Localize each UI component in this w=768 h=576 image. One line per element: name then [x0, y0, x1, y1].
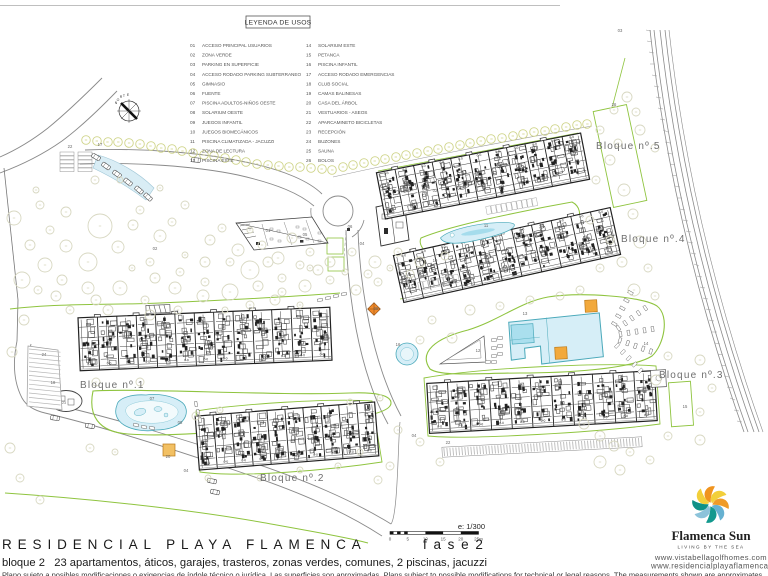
svg-text:bloque 2 23 apartamentos, át: bloque 2 23 apartamentos, áticos, garaje… — [2, 557, 487, 569]
svg-text:RESIDENCIAL PLAYA FLAMENCA: RESIDENCIAL PLAYA FLAMENCA — [2, 537, 367, 552]
svg-text:12: 12 — [476, 348, 481, 353]
svg-text:Plano sujeto a posibles modifi: Plano sujeto a posibles modificaciones o… — [2, 571, 764, 576]
svg-text:www.residencialplayaflamenca.: www.residencialplayaflamenca. — [650, 562, 768, 571]
svg-text:0-0: 0-0 — [223, 356, 228, 360]
svg-text:15: 15 — [306, 53, 312, 58]
svg-text:Bloque nº.5: Bloque nº.5 — [596, 141, 661, 152]
svg-text:09: 09 — [190, 120, 196, 125]
svg-text:RECEPCIÓN: RECEPCIÓN — [318, 128, 345, 134]
svg-text:0-0: 0-0 — [205, 461, 210, 465]
svg-text:0-0: 0-0 — [277, 455, 282, 459]
svg-text:20: 20 — [306, 101, 312, 106]
svg-text:0-0: 0-0 — [479, 422, 484, 426]
svg-text:PISCINA INFANTIL: PISCINA INFANTIL — [318, 62, 358, 67]
svg-text:PARKING EN SUPERFICIE: PARKING EN SUPERFICIE — [202, 62, 259, 67]
svg-text:10: 10 — [433, 258, 438, 263]
svg-text:fase2: fase2 — [423, 537, 490, 552]
svg-text:0-0: 0-0 — [126, 360, 131, 364]
svg-text:CAMAS BALINESAS: CAMAS BALINESAS — [318, 91, 361, 96]
svg-text:16: 16 — [306, 62, 312, 67]
svg-text:26: 26 — [306, 158, 312, 163]
svg-text:0-0: 0-0 — [295, 454, 300, 458]
svg-text:0-0: 0-0 — [331, 451, 336, 455]
svg-text:10: 10 — [190, 129, 196, 134]
svg-text:04: 04 — [184, 468, 189, 473]
svg-text:Flamenca Sun: Flamenca Sun — [671, 528, 751, 543]
svg-text:16: 16 — [396, 342, 401, 347]
svg-text:LEYENDA DE USOS: LEYENDA DE USOS — [245, 20, 312, 27]
svg-text:04: 04 — [190, 72, 196, 77]
svg-text:18: 18 — [51, 380, 56, 385]
svg-text:VESTUARIOS - ASEOS: VESTUARIOS - ASEOS — [318, 110, 367, 115]
svg-text:14: 14 — [306, 43, 312, 48]
svg-text:0-0: 0-0 — [320, 352, 325, 356]
svg-text:22: 22 — [68, 144, 73, 149]
svg-text:ZONA VERDE: ZONA VERDE — [202, 53, 232, 58]
svg-text:0-0: 0-0 — [184, 358, 189, 362]
svg-text:23: 23 — [62, 401, 66, 405]
svg-text:01: 01 — [190, 43, 196, 48]
svg-text:04: 04 — [412, 433, 417, 438]
svg-text:JUEGOS BIOMECÁNICOS: JUEGOS BIOMECÁNICOS — [202, 128, 258, 134]
svg-text:ACCESO RODADO PARKING SUBTERRA: ACCESO RODADO PARKING SUBTERRANEO — [202, 72, 301, 77]
svg-text:Bloque nº.4: Bloque nº.4 — [621, 234, 686, 245]
svg-text:0-0: 0-0 — [623, 414, 628, 418]
svg-text:02: 02 — [518, 396, 523, 401]
svg-text:23: 23 — [306, 129, 312, 134]
svg-text:22: 22 — [446, 440, 451, 445]
svg-text:0-0: 0-0 — [259, 457, 264, 461]
svg-text:05: 05 — [303, 232, 308, 237]
svg-text:0-0: 0-0 — [561, 417, 566, 421]
svg-text:0-0: 0-0 — [203, 357, 208, 361]
svg-text:0-0: 0-0 — [437, 424, 442, 428]
svg-text:02: 02 — [433, 188, 438, 193]
svg-text:0-0: 0-0 — [262, 355, 267, 359]
svg-text:Bloque nº.1: Bloque nº.1 — [80, 380, 145, 391]
svg-text:0-0: 0-0 — [145, 360, 150, 364]
svg-text:13: 13 — [190, 158, 196, 163]
svg-text:11: 11 — [484, 223, 489, 228]
svg-text:02: 02 — [190, 53, 196, 58]
svg-text:25: 25 — [306, 149, 312, 154]
svg-text:0-0: 0-0 — [644, 413, 649, 417]
svg-text:17: 17 — [306, 72, 312, 77]
svg-text:0-0: 0-0 — [165, 359, 170, 363]
svg-text:0-0: 0-0 — [300, 353, 305, 357]
svg-text:LIVING BY THE SEA: LIVING BY THE SEA — [677, 545, 744, 550]
svg-text:22: 22 — [306, 120, 312, 125]
svg-text:PISCINA ADULTOS-NIÑOS OESTE: PISCINA ADULTOS-NIÑOS OESTE — [202, 100, 276, 106]
svg-text:Bloque nº.3: Bloque nº.3 — [659, 370, 724, 381]
svg-text:BOLOS: BOLOS — [318, 158, 334, 163]
svg-text:CLUB SOCIAL: CLUB SOCIAL — [318, 81, 349, 86]
svg-text:06: 06 — [348, 224, 353, 229]
svg-text:0-0: 0-0 — [87, 362, 92, 366]
svg-text:0-0: 0-0 — [541, 419, 546, 423]
svg-text:07: 07 — [150, 396, 155, 401]
svg-text:09: 09 — [374, 306, 379, 311]
svg-text:ACCESO RODADO EMERGENCIAS: ACCESO RODADO EMERGENCIAS — [318, 72, 394, 77]
svg-text:0-0: 0-0 — [520, 420, 525, 424]
svg-text:01: 01 — [266, 228, 271, 233]
svg-text:20: 20 — [166, 454, 171, 459]
svg-text:BUZONES: BUZONES — [318, 139, 340, 144]
svg-text:PISCINA CLIMATIZADA - JACUZZI: PISCINA CLIMATIZADA - JACUZZI — [202, 139, 274, 144]
svg-text:ZONA DE LECTURA: ZONA DE LECTURA — [202, 149, 246, 154]
svg-text:0-0: 0-0 — [367, 448, 372, 452]
svg-text:0-0: 0-0 — [107, 361, 112, 365]
svg-text:24: 24 — [42, 352, 47, 357]
svg-text:PISCINA ESTE: PISCINA ESTE — [202, 158, 233, 163]
svg-text:08: 08 — [178, 420, 183, 425]
svg-text:18: 18 — [306, 81, 312, 86]
svg-text:GIMNASIO: GIMNASIO — [202, 81, 225, 86]
svg-text:12: 12 — [190, 149, 196, 154]
svg-text:08: 08 — [190, 110, 196, 115]
svg-text:CASA DEL ÁRBOL: CASA DEL ÁRBOL — [318, 100, 358, 106]
svg-text:13: 13 — [523, 311, 528, 316]
svg-text:02: 02 — [153, 246, 158, 251]
svg-text:FUENTE: FUENTE — [202, 91, 220, 96]
svg-text:24: 24 — [306, 139, 312, 144]
svg-text:14: 14 — [644, 341, 649, 346]
svg-text:05: 05 — [190, 81, 196, 86]
svg-text:e: 1/300: e: 1/300 — [458, 522, 485, 531]
svg-text:0-0: 0-0 — [313, 452, 318, 456]
svg-text:0-0: 0-0 — [281, 354, 286, 358]
svg-text:PETANCA: PETANCA — [318, 53, 340, 58]
svg-text:0-0: 0-0 — [458, 423, 463, 427]
svg-text:0-0: 0-0 — [223, 459, 228, 463]
svg-text:SOLARIUM ESTE: SOLARIUM ESTE — [318, 43, 355, 48]
svg-text:ACCESO PRINCIPAL USUARIOS: ACCESO PRINCIPAL USUARIOS — [202, 43, 272, 48]
svg-text:SOLARIUM OESTE: SOLARIUM OESTE — [202, 110, 243, 115]
svg-text:JUEGOS INFANTIL: JUEGOS INFANTIL — [202, 120, 243, 125]
svg-text:26: 26 — [612, 102, 617, 107]
svg-text:17: 17 — [98, 142, 103, 147]
svg-text:11: 11 — [190, 139, 195, 144]
svg-text:19: 19 — [306, 91, 312, 96]
svg-text:03: 03 — [618, 28, 623, 33]
svg-text:0-0: 0-0 — [241, 458, 246, 462]
svg-text:0-0: 0-0 — [499, 421, 504, 425]
svg-text:0-0: 0-0 — [349, 450, 354, 454]
svg-text:Bloque nº.2: Bloque nº.2 — [260, 473, 325, 484]
svg-text:21: 21 — [306, 110, 312, 115]
svg-text:SAUNA: SAUNA — [318, 149, 335, 154]
svg-text:15: 15 — [683, 404, 688, 409]
svg-text:0-0: 0-0 — [603, 415, 608, 419]
svg-text:06: 06 — [190, 91, 196, 96]
svg-text:04: 04 — [360, 241, 365, 246]
svg-text:APARCAMINETO BICICLETAS: APARCAMINETO BICICLETAS — [318, 120, 382, 125]
svg-text:0-0: 0-0 — [242, 356, 247, 360]
svg-text:03: 03 — [190, 62, 196, 67]
svg-text:07: 07 — [190, 101, 196, 106]
